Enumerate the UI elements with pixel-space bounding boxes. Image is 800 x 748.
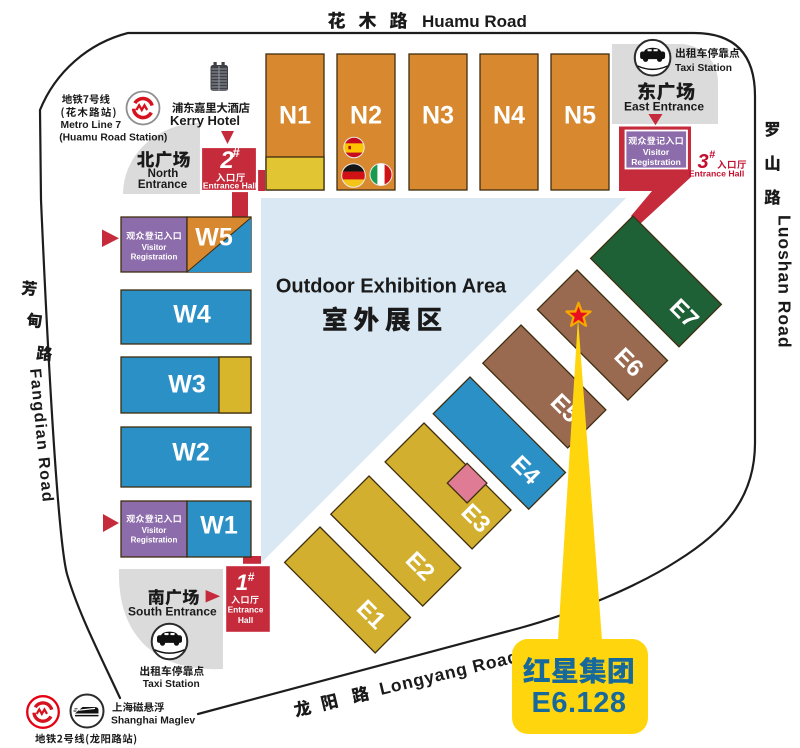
svg-text:N1: N1	[279, 102, 311, 130]
svg-text:Registration: Registration	[131, 253, 178, 262]
svg-text:East Entrance: East Entrance	[624, 100, 704, 114]
svg-text:South Entrance: South Entrance	[128, 605, 217, 619]
svg-text:Huamu Road: Huamu Road	[422, 12, 527, 31]
svg-text:W5: W5	[195, 224, 233, 252]
svg-text:W2: W2	[172, 439, 210, 467]
svg-text:Kerry Hotel: Kerry Hotel	[170, 113, 240, 128]
svg-text:Taxi Station: Taxi Station	[675, 63, 732, 74]
svg-text:Entrance Hall: Entrance Hall	[689, 169, 745, 179]
svg-text:E6.128: E6.128	[532, 687, 627, 719]
svg-text:#: #	[709, 149, 716, 161]
svg-text:1: 1	[236, 570, 248, 595]
svg-text:W3: W3	[168, 371, 206, 399]
svg-text:Visitor: Visitor	[643, 147, 670, 157]
svg-text:W1: W1	[200, 512, 238, 540]
svg-text:Visitor: Visitor	[142, 526, 167, 535]
svg-text:Registration: Registration	[131, 536, 178, 545]
svg-text:N5: N5	[564, 102, 596, 130]
svg-text:#: #	[248, 570, 255, 584]
svg-text:Registration: Registration	[631, 157, 681, 167]
svg-text:Outdoor Exhibition Area: Outdoor Exhibition Area	[276, 276, 507, 298]
svg-text:Luoshan Road: Luoshan Road	[775, 215, 795, 349]
svg-text:N4: N4	[493, 102, 525, 130]
svg-text:N2: N2	[350, 102, 382, 130]
svg-text:Entrance Hall: Entrance Hall	[203, 181, 257, 191]
svg-text:Hall: Hall	[238, 615, 253, 625]
svg-text:Entrance: Entrance	[138, 179, 187, 191]
svg-text:(Huamu Road Station): (Huamu Road Station)	[59, 133, 167, 144]
svg-text:Shanghai Maglev: Shanghai Maglev	[111, 716, 195, 727]
svg-text:#: #	[232, 145, 240, 160]
svg-text:W4: W4	[173, 301, 211, 329]
svg-text:N3: N3	[422, 102, 454, 130]
svg-text:Metro Line 7: Metro Line 7	[61, 120, 122, 131]
svg-text:Visitor: Visitor	[142, 243, 167, 252]
svg-text:Entrance: Entrance	[228, 605, 264, 615]
svg-text:Taxi Station: Taxi Station	[143, 679, 200, 690]
